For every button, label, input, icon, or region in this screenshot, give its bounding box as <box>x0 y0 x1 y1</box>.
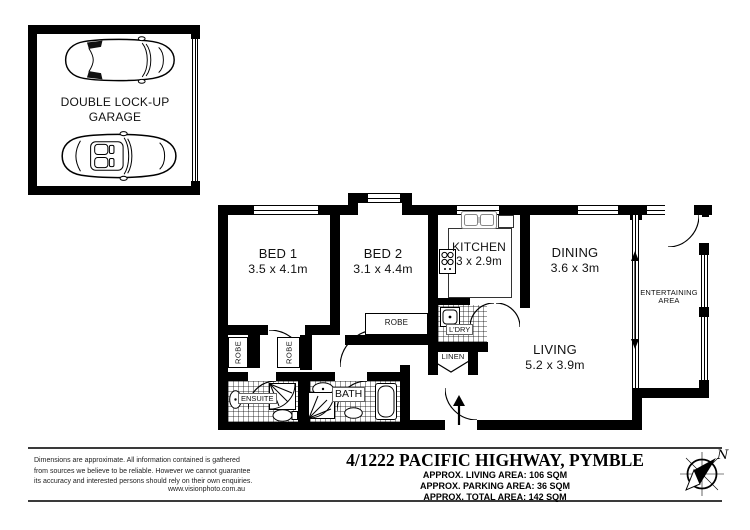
website-link[interactable]: www.visionphoto.com.au <box>34 486 379 493</box>
bed2-door-arc <box>340 330 377 367</box>
wall <box>305 325 340 335</box>
wall <box>218 372 248 381</box>
entertaining-window <box>647 205 665 215</box>
bath-toilet-icon <box>344 407 363 419</box>
wall <box>348 193 368 203</box>
label-bed2-robe: ROBE <box>365 319 428 328</box>
wall <box>477 420 642 430</box>
room-label-dining: DINING 3.6 x 3m <box>528 245 622 276</box>
room-label-living: LIVING 5.2 x 3.9m <box>500 342 610 373</box>
room-label-kitchen: KITCHEN 3 x 2.9m <box>440 240 518 269</box>
wall <box>702 205 709 217</box>
floorplan-page: DOUBLE LOCK-UP GARAGE <box>0 0 750 530</box>
entertaining-door-arc <box>668 215 699 247</box>
wall <box>218 325 268 335</box>
wall <box>428 342 488 352</box>
label-robe-right: ROBE <box>281 339 297 366</box>
wall <box>638 388 709 398</box>
entertaining-side-window <box>701 255 708 307</box>
bed1-window <box>254 205 318 215</box>
wall <box>699 307 709 317</box>
kitchen-door-arc-right <box>496 303 520 327</box>
area-summary: APPROX. LIVING AREA: 106 SQM APPROX. PAR… <box>330 470 660 502</box>
wall <box>28 186 200 195</box>
divider <box>28 447 722 449</box>
label-laundry: L'DRY <box>446 324 473 335</box>
compass-icon: N <box>676 446 730 500</box>
room-label-entertaining: ENTERTAINING AREA <box>636 289 702 306</box>
label-robe-left: ROBE <box>230 339 246 366</box>
linen-bifold-icon <box>432 360 470 373</box>
property-title: 4/1222 PACIFIC HIGHWAY, PYMBLE <box>330 450 660 471</box>
wall <box>699 243 709 255</box>
kitchen-door-arc-left <box>470 303 494 327</box>
bathtub-icon <box>375 383 397 420</box>
wall <box>191 181 200 195</box>
wall <box>218 205 228 430</box>
wall <box>276 372 335 381</box>
ensuite-toilet-icon <box>272 409 298 422</box>
label-linen: LINEN <box>436 352 470 361</box>
wall <box>28 25 200 34</box>
wall <box>412 205 457 215</box>
garage-door <box>192 39 198 181</box>
compass-north-letter: N <box>716 448 729 463</box>
bed2-bay-window <box>368 193 400 203</box>
room-label-bed2: BED 2 3.1 x 4.4m <box>336 246 430 277</box>
garage-label: DOUBLE LOCK-UP GARAGE <box>54 95 176 124</box>
label-bath: BATH <box>332 387 365 402</box>
car-convertible-icon <box>50 128 182 184</box>
wall <box>191 25 200 39</box>
entertaining-side-window <box>701 317 708 380</box>
car-coupe-icon <box>54 34 180 86</box>
wall <box>400 365 410 430</box>
entry-arrow-icon <box>451 394 467 426</box>
wall <box>28 25 37 195</box>
bath-shower-icon <box>308 392 335 419</box>
kitchen-sink-icon <box>461 211 497 229</box>
label-ensuite: ENSUITE <box>238 393 277 404</box>
wall <box>402 193 412 215</box>
wall <box>499 205 578 215</box>
disclaimer: Dimensions are approximate. All informat… <box>34 456 379 488</box>
wall <box>248 335 260 368</box>
wall <box>318 205 350 215</box>
room-label-bed1: BED 1 3.5 x 4.1m <box>225 246 331 277</box>
dining-window <box>578 205 618 215</box>
kitchen-counter <box>498 215 514 228</box>
